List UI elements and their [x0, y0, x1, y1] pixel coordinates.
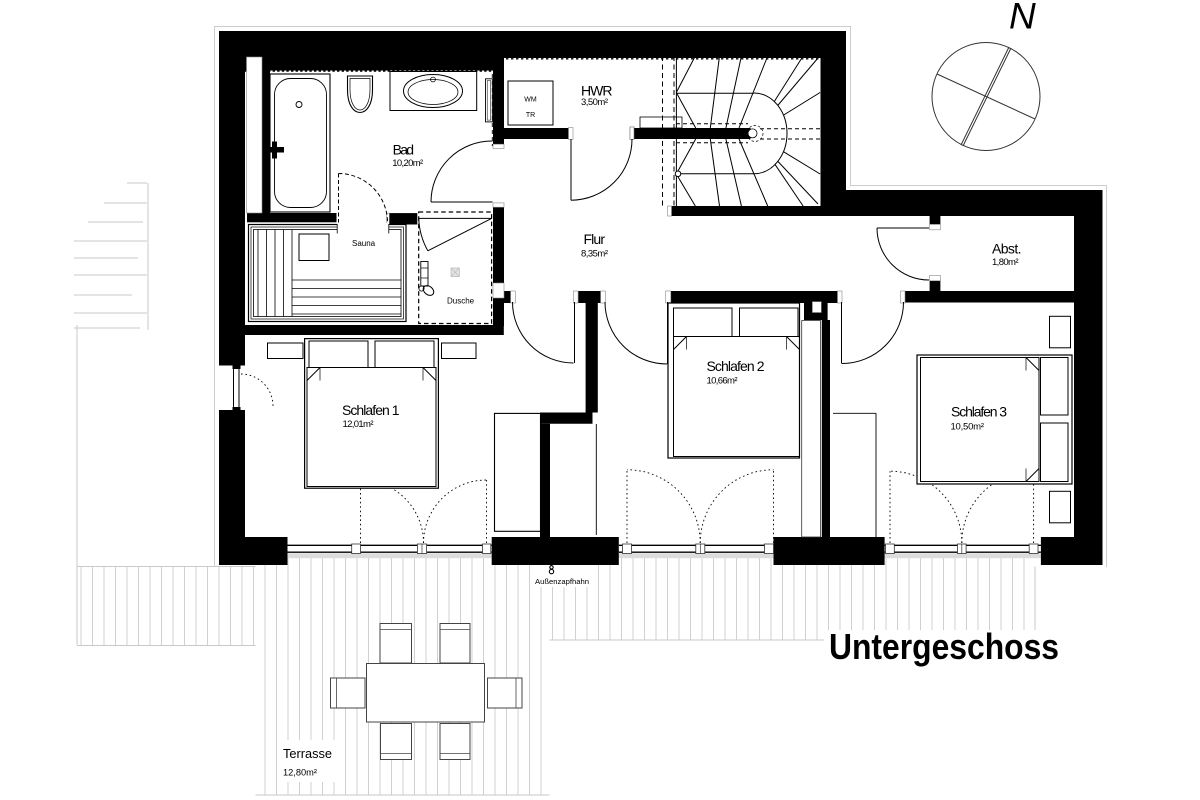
- svg-text:Schlafen 2: Schlafen 2: [707, 358, 765, 374]
- svg-text:10,20m²: 10,20m²: [392, 158, 423, 169]
- svg-text:1,80m²: 1,80m²: [992, 257, 1019, 268]
- svg-text:Schlafen 1: Schlafen 1: [342, 402, 400, 418]
- svg-text:TR: TR: [526, 112, 535, 119]
- svg-text:Dusche: Dusche: [447, 297, 475, 306]
- svg-text:12,80m²: 12,80m²: [283, 768, 317, 779]
- svg-text:10,50m²: 10,50m²: [951, 422, 985, 433]
- svg-text:Bad: Bad: [393, 142, 415, 158]
- svg-text:3,50m²: 3,50m²: [581, 97, 608, 108]
- svg-text:Abst.: Abst.: [992, 241, 1022, 257]
- svg-text:N: N: [1009, 0, 1036, 37]
- svg-text:12,01m²: 12,01m²: [343, 419, 374, 430]
- svg-text:8,35m²: 8,35m²: [581, 249, 608, 260]
- svg-text:Untergeschoss: Untergeschoss: [829, 626, 1059, 667]
- svg-text:Terrasse: Terrasse: [283, 746, 332, 761]
- svg-text:Flur: Flur: [584, 231, 606, 247]
- svg-text:Außenzapfhahn: Außenzapfhahn: [535, 577, 589, 586]
- svg-text:Sauna: Sauna: [352, 239, 376, 248]
- svg-text:Schlafen 3: Schlafen 3: [951, 404, 1007, 420]
- svg-text:10,66m²: 10,66m²: [707, 376, 738, 387]
- svg-text:WM: WM: [524, 97, 537, 104]
